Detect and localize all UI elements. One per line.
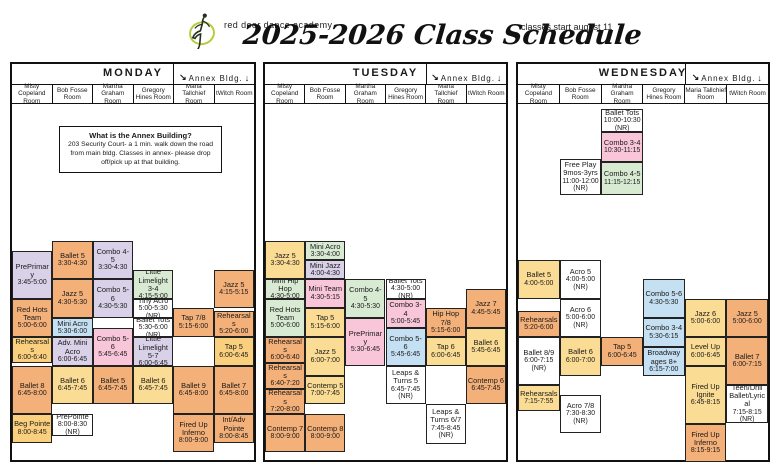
class-cell: Contemp 66:45-7:45 bbox=[466, 366, 506, 404]
class-time: 8:00-9:00 bbox=[179, 437, 208, 445]
class-cell: Ballet 76:00-7:15 bbox=[726, 337, 768, 385]
class-cell: Hip Hop 7/85:15-6:00 bbox=[426, 308, 466, 337]
class-time: 8:00-9:00 bbox=[271, 433, 300, 441]
class-time: 4:45-5:45 bbox=[471, 309, 500, 317]
class-cell: Leaps & Turns 6/77:45-8:45 (NR) bbox=[426, 404, 466, 444]
class-time: 6:00-7:15 (NR) bbox=[520, 357, 558, 372]
class-name: Ballet 5 bbox=[60, 252, 85, 260]
class-time: 11:00-12:00 (NR) bbox=[562, 178, 600, 193]
class-time: 6:40-7:20 bbox=[271, 380, 300, 388]
class-time: 4:00-4:30 bbox=[311, 270, 340, 278]
class-name: Tap 6 bbox=[437, 343, 455, 351]
room-header: tWitch Room bbox=[726, 85, 768, 103]
class-time: 6:00-7:00 bbox=[566, 357, 595, 365]
class-cell: Tiny Acro5:00-5:30 (NR) bbox=[133, 299, 173, 318]
class-name: Ballet 7 bbox=[735, 353, 760, 361]
class-time: 7:15-7:55 bbox=[524, 398, 553, 406]
day-header-row: MONDAY↘Annex Bldg.↓ bbox=[12, 64, 254, 85]
class-time: 6:15-7:00 bbox=[649, 366, 678, 374]
class-name: Rehearsals bbox=[267, 364, 303, 381]
class-time: 5:20-6:00 bbox=[219, 328, 248, 336]
class-time: 8:00-8:45 bbox=[219, 433, 248, 441]
class-name: Acro 7/8 bbox=[567, 402, 595, 410]
class-name: Combo 5-6 bbox=[388, 335, 424, 352]
class-time: 5:00-6:00 bbox=[733, 318, 762, 326]
class-name: Combo 5-6 bbox=[95, 286, 131, 303]
class-name: Combo 4-5 bbox=[347, 286, 383, 303]
room-header: Maria Tallchief Room bbox=[173, 85, 214, 103]
class-cell: Fired Up Ignite6:45-8:15 bbox=[685, 366, 727, 424]
class-cell: Rehearsals5:20-6:00 bbox=[518, 311, 560, 337]
day-table-tuesday: TUESDAY↘Annex Bldg.↓Misty Copeland RoomB… bbox=[263, 62, 508, 462]
annex-arrow-down-right-icon: ↘ bbox=[179, 72, 187, 83]
class-cell: Jazz 55:00-6:00 bbox=[726, 299, 768, 337]
class-cell: Tap 56:00-6:45 bbox=[601, 337, 643, 366]
class-name: Fired Up Inferno bbox=[175, 421, 211, 438]
class-name: Free Play 9mos-3yrs bbox=[562, 161, 600, 178]
class-cell: Contemp 57:00-7:45 bbox=[305, 376, 345, 404]
class-time: 6:45-8:00 bbox=[179, 390, 208, 398]
room-header-row: Misty Copeland RoomBob Fosse RoomMartha … bbox=[265, 85, 506, 104]
class-cell: Ballet 66:45-7:45 bbox=[133, 366, 173, 404]
class-name: Ballet Tots bbox=[605, 109, 639, 117]
class-time: 5:45-6:45 bbox=[471, 347, 500, 355]
class-cell: Rehearsals6:00-6:40 bbox=[12, 337, 52, 363]
annex-info-body: 203 Security Court- a 1 min. walk down t… bbox=[64, 141, 217, 167]
annex-arrow-down-icon: ↓ bbox=[757, 73, 762, 83]
class-time: 8:00-8:45 bbox=[18, 429, 47, 437]
annex-bldg-label: ↘Annex Bldg.↓ bbox=[685, 64, 768, 84]
class-cell: Combo 5-64:30-5:30 bbox=[643, 279, 685, 318]
annex-arrow-down-icon: ↓ bbox=[497, 73, 502, 83]
class-cell: Ballet 56:45-7:45 bbox=[93, 366, 133, 404]
class-cell: Mini Jazz4:00-4:30 bbox=[305, 260, 345, 279]
class-cell: Mini Acro3:30-4:00 bbox=[305, 241, 345, 260]
class-name: Contemp 5 bbox=[307, 382, 343, 390]
class-name: Ballet 6 bbox=[60, 377, 85, 385]
annex-label-text: Annex Bldg. bbox=[701, 74, 755, 83]
class-cell: Broadway ages 8+6:15-7:00 bbox=[643, 347, 685, 376]
class-name: Jazz 5 bbox=[315, 348, 336, 356]
class-time: 3:30-4:30 bbox=[58, 260, 87, 268]
class-cell: Combo 4-53:30-4:30 bbox=[93, 241, 133, 279]
class-cell: Combo 3-45:00-5:45 bbox=[386, 299, 426, 328]
day-table-monday: MONDAY↘Annex Bldg.↓Misty Copeland RoomBo… bbox=[10, 62, 256, 462]
class-time: 5:20-6:00 bbox=[524, 324, 553, 332]
class-time: 6:00-6:40 bbox=[271, 354, 300, 362]
class-cell: Ballet 66:00-7:00 bbox=[560, 337, 602, 376]
class-cell: Ballet Tots4:30-5:00 (NR) bbox=[386, 279, 426, 299]
class-cell: Rehearsals6:40-7:20 bbox=[265, 363, 305, 389]
class-time: 8:15-9:15 bbox=[691, 447, 720, 455]
class-cell: Contemp 88:00-9:00 bbox=[305, 414, 345, 452]
day-body: Ballet 54:00-5:00Rehearsals5:20-6:00Ball… bbox=[518, 104, 768, 462]
class-time: 11:15-12:15 bbox=[604, 179, 640, 187]
class-name: Mini Hip Hop bbox=[267, 279, 303, 293]
class-time: 3:30-4:00 bbox=[311, 251, 340, 259]
class-time: 3:30-4:30 bbox=[98, 264, 127, 272]
class-time: 5:00-5:45 bbox=[391, 318, 420, 326]
class-cell: Ballet 86:45-8:00 bbox=[12, 366, 52, 414]
room-header: tWitch Room bbox=[466, 85, 506, 103]
room-header: Maria Tallchief Room bbox=[684, 85, 726, 103]
class-cell: Tap 66:00-6:45 bbox=[426, 337, 466, 366]
class-name: Int/Adv Pointe bbox=[216, 416, 252, 433]
class-time: 8:00-8:30 (NR) bbox=[54, 421, 90, 436]
class-cell: Int/Adv Pointe8:00-8:45 bbox=[214, 414, 254, 443]
class-cell: Jazz 74:45-5:45 bbox=[466, 289, 506, 328]
class-name: Red Hots Team bbox=[14, 306, 50, 323]
class-time: 4:30-5:30 bbox=[58, 299, 87, 307]
class-time: 5:00-5:30 (NR) bbox=[135, 305, 171, 318]
class-cell: Tap 7/85:15-6:00 bbox=[173, 308, 213, 337]
class-cell: Jazz 56:00-7:00 bbox=[305, 337, 345, 376]
day-header-row: WEDNESDAY↘Annex Bldg.↓ bbox=[518, 64, 768, 85]
class-name: Combo 5-6 bbox=[646, 290, 683, 298]
class-cell: Rehearsals6:00-6:40 bbox=[265, 337, 305, 363]
class-cell: Fired Up Inferno8:15-9:15 bbox=[685, 424, 727, 462]
class-cell: Ballet Tots10:00-10:30 (NR) bbox=[601, 109, 643, 132]
class-name: Contemp 7 bbox=[267, 425, 303, 433]
class-cell: Combo 4-54:30-5:30 bbox=[345, 279, 385, 318]
class-cell: PrePointe8:00-8:30 (NR) bbox=[52, 414, 92, 436]
class-time: 6:00-6:45 bbox=[58, 356, 87, 364]
class-name: Little Limelight 3-4 bbox=[135, 270, 171, 293]
class-time: 5:45-6:45 bbox=[391, 351, 420, 359]
room-header: Martha Graham Room bbox=[345, 85, 385, 103]
class-time: 6:00-7:15 bbox=[733, 361, 762, 369]
room-header: Bob Fosse Room bbox=[52, 85, 93, 103]
class-cell: Mini Team4:30-5:15 bbox=[305, 279, 345, 308]
class-time: 5:00-6:00 bbox=[691, 318, 720, 326]
class-name: Ballet 8/9 bbox=[523, 349, 554, 357]
class-cell: Red Hots Team5:00-6:00 bbox=[12, 299, 52, 337]
class-cell: Ballet 66:45-7:45 bbox=[52, 366, 92, 404]
start-date-note: classes start august 11 bbox=[521, 22, 612, 32]
annex-arrow-down-icon: ↓ bbox=[245, 73, 250, 83]
class-name: Mini Acro bbox=[310, 243, 340, 251]
class-cell: Jazz 53:30-4:30 bbox=[265, 241, 305, 279]
class-name: Tap 5 bbox=[225, 343, 243, 351]
class-name: Level Up bbox=[691, 343, 720, 351]
class-time: 6:45-8:00 bbox=[219, 390, 248, 398]
class-time: 6:45-7:45 (NR) bbox=[388, 386, 424, 401]
class-time: 5:45-6:45 bbox=[98, 351, 127, 359]
annex-arrow-down-right-icon: ↘ bbox=[692, 72, 700, 83]
class-cell: Ballet 76:45-8:00 bbox=[214, 366, 254, 414]
class-name: Hip Hop 7/8 bbox=[428, 310, 464, 327]
class-cell: Jazz 54:15-5:15 bbox=[214, 270, 254, 308]
class-name: Leaps & Turns 6/7 bbox=[428, 408, 464, 425]
class-time: 5:00-6:00 bbox=[271, 322, 300, 330]
class-name: Acro 5 bbox=[570, 268, 591, 276]
class-time: 7:30-8:30 (NR) bbox=[562, 410, 600, 425]
class-name: Contemp 6 bbox=[468, 377, 504, 385]
class-name: Ballet 9 bbox=[181, 382, 206, 390]
class-cell: Combo 4-511:15-12:15 bbox=[601, 162, 643, 195]
class-name: Adv. Mini Acro bbox=[54, 339, 90, 356]
class-time: 7:00-7:45 bbox=[311, 390, 340, 398]
schedule-page: red door dance academy 2025-2026 Class S… bbox=[0, 0, 780, 476]
room-header: Misty Copeland Room bbox=[518, 85, 559, 103]
class-name: Ballet 6 bbox=[474, 339, 499, 347]
annex-info-title: What is the Annex Building? bbox=[64, 131, 217, 140]
class-name: Rehearsals bbox=[267, 389, 303, 406]
class-cell: Rehearsals7:15-7:55 bbox=[518, 385, 560, 411]
room-header: Maria Tallchief Room bbox=[425, 85, 465, 103]
class-time: 6:00-6:45 bbox=[608, 352, 637, 360]
class-name: Rehearsals bbox=[14, 338, 50, 355]
class-name: Ballet 8 bbox=[20, 382, 45, 390]
class-cell: Contemp 78:00-9:00 bbox=[265, 414, 305, 452]
class-name: Combo 3-4 bbox=[646, 324, 683, 332]
class-time: 5:15-6:00 bbox=[431, 327, 460, 335]
class-name: Rehearsals bbox=[267, 338, 303, 355]
class-time: 5:00-6:00 (NR) bbox=[562, 314, 600, 329]
class-time: 4:30-5:30 bbox=[649, 299, 678, 307]
class-time: 5:30-6:00 (NR) bbox=[135, 324, 171, 337]
room-header: Misty Copeland Room bbox=[12, 85, 52, 103]
class-time: 6:00-6:45 bbox=[219, 352, 248, 360]
class-name: Mini Acro bbox=[57, 320, 87, 328]
class-cell: Adv. Mini Acro6:00-6:45 bbox=[52, 337, 92, 366]
class-cell: Combo 5-65:45-6:45 bbox=[93, 328, 133, 366]
class-name: Leaps & Turns 5 bbox=[388, 369, 424, 386]
class-time: 7:45-8:45 (NR) bbox=[428, 425, 464, 440]
room-header-row: Misty Copeland RoomBob Fosse RoomMartha … bbox=[518, 85, 768, 104]
class-cell: Mini Hip Hop4:30-5:00 bbox=[265, 279, 305, 299]
class-name: Jazz 5 bbox=[736, 310, 757, 318]
class-time: 5:15-6:00 bbox=[179, 323, 208, 331]
class-name: Combo 4-5 bbox=[604, 170, 641, 178]
class-name: Jazz 7 bbox=[475, 300, 496, 308]
class-time: 5:00-6:00 bbox=[18, 322, 47, 330]
class-cell: Rehearsals5:20-6:00 bbox=[214, 311, 254, 337]
class-name: Combo 5-6 bbox=[95, 335, 131, 352]
class-cell: Ballet 53:30-4:30 bbox=[52, 241, 92, 279]
class-name: Ballet 7 bbox=[221, 382, 246, 390]
class-time: 5:30-6:00 bbox=[58, 328, 87, 336]
annex-label-text: Annex Bldg. bbox=[189, 74, 243, 83]
class-name: PrePrimary bbox=[347, 330, 383, 347]
class-cell: Ballet 8/96:00-7:15 (NR) bbox=[518, 337, 560, 385]
class-time: 6:00-6:45 bbox=[691, 352, 720, 360]
class-name: Ballet 6 bbox=[141, 377, 166, 385]
class-time: 4:30-5:00 (NR) bbox=[388, 285, 424, 299]
class-cell: Fired Up Inferno8:00-9:00 bbox=[173, 414, 213, 452]
class-time: 4:30-5:30 bbox=[98, 303, 127, 311]
class-time: 5:15-6:00 bbox=[311, 323, 340, 331]
class-name: Ballet 5 bbox=[527, 271, 552, 279]
class-name: Rehearsals bbox=[520, 316, 557, 324]
class-cell: Rehearsals7:20-8:00 bbox=[265, 389, 305, 414]
class-cell: Free Play 9mos-3yrs11:00-12:00 (NR) bbox=[560, 159, 602, 195]
class-cell: Combo 5-65:45-6:45 bbox=[386, 328, 426, 366]
class-cell: Acro 7/87:30-8:30 (NR) bbox=[560, 395, 602, 433]
class-name: Rehearsals bbox=[520, 390, 557, 398]
class-time: 5:30-6:45 bbox=[351, 346, 380, 354]
class-time: 7:20-8:00 bbox=[271, 406, 300, 414]
class-time: 4:30-5:15 bbox=[311, 294, 340, 302]
annex-bldg-label: ↘Annex Bldg.↓ bbox=[173, 64, 254, 84]
class-name: Jazz 5 bbox=[62, 290, 83, 298]
class-name: Combo 4-5 bbox=[95, 248, 131, 265]
class-name: Mini Jazz bbox=[310, 262, 341, 270]
room-header: Bob Fosse Room bbox=[304, 85, 344, 103]
class-name: Fired Up Ignite bbox=[687, 383, 725, 400]
class-time: 5:30-6:15 bbox=[649, 333, 678, 341]
class-name: Tap 5 bbox=[613, 343, 631, 351]
class-cell: Little Limelight 5-76:00-6:45 bbox=[133, 337, 173, 366]
class-time: 8:00-9:00 bbox=[311, 433, 340, 441]
class-name: Rehearsals bbox=[216, 312, 252, 329]
class-time: 6:45-8:00 bbox=[18, 390, 47, 398]
class-time: 6:00-7:00 bbox=[311, 357, 340, 365]
room-header: Gregory Hines Room bbox=[642, 85, 684, 103]
class-name: Combo 3-4 bbox=[388, 301, 424, 318]
room-header: Martha Graham Room bbox=[601, 85, 643, 103]
class-cell: Jazz 65:00-6:00 bbox=[685, 299, 727, 337]
room-header: Gregory Hines Room bbox=[385, 85, 425, 103]
class-cell: Ballet 96:45-8:00 bbox=[173, 366, 213, 414]
class-cell: Tap 56:00-6:45 bbox=[214, 337, 254, 366]
class-time: 10:00-10:30 (NR) bbox=[603, 117, 641, 132]
day-table-wednesday: WEDNESDAY↘Annex Bldg.↓Misty Copeland Roo… bbox=[516, 62, 770, 462]
class-name: Beg Pointe bbox=[14, 420, 50, 428]
class-name: Teen/Drill Ballet/Lyrical bbox=[728, 385, 766, 409]
class-cell: Combo 3-45:30-6:15 bbox=[643, 318, 685, 347]
class-name: Broadway ages 8+ bbox=[645, 349, 683, 366]
class-name: Fired Up Inferno bbox=[687, 431, 725, 448]
class-cell: Mini Acro5:30-6:00 bbox=[52, 318, 92, 337]
class-name: PrePrimary bbox=[14, 263, 50, 280]
class-time: 3:30-4:30 bbox=[271, 260, 300, 268]
room-header: Gregory Hines Room bbox=[133, 85, 174, 103]
class-cell: Combo 3-410:30-11:15 bbox=[601, 132, 643, 162]
class-time: 3:45-5:00 bbox=[18, 279, 47, 287]
annex-arrow-down-right-icon: ↘ bbox=[431, 72, 439, 83]
room-header: tWitch Room bbox=[214, 85, 255, 103]
class-cell: Level Up6:00-6:45 bbox=[685, 337, 727, 366]
class-cell: Tap 55:15-6:00 bbox=[305, 308, 345, 337]
class-name: Ballet 5 bbox=[100, 377, 125, 385]
room-header: Bob Fosse Room bbox=[559, 85, 601, 103]
class-time: 4:00-5:00 bbox=[524, 280, 553, 288]
class-cell: Red Hots Team5:00-6:00 bbox=[265, 299, 305, 337]
day-body: Jazz 53:30-4:30Mini Hip Hop4:30-5:00Red … bbox=[265, 104, 506, 462]
class-cell: Beg Pointe8:00-8:45 bbox=[12, 414, 52, 443]
class-time: 10:30-11:15 bbox=[604, 147, 640, 155]
class-time: 6:45-7:45 bbox=[139, 385, 168, 393]
class-name: Acro 6 bbox=[570, 306, 591, 314]
class-cell: Ballet 54:00-5:00 bbox=[518, 260, 560, 299]
annex-bldg-label: ↘Annex Bldg.↓ bbox=[426, 64, 506, 84]
studio-logo-dancer-icon bbox=[186, 11, 218, 54]
class-cell: Acro 65:00-6:00 (NR) bbox=[560, 299, 602, 337]
class-name: Mini Team bbox=[308, 285, 342, 293]
class-name: Ballet 6 bbox=[568, 348, 593, 356]
class-time: 6:45-7:45 bbox=[471, 385, 500, 393]
class-name: Little Limelight 5-7 bbox=[135, 337, 171, 360]
class-name: Red Hots Team bbox=[267, 306, 303, 323]
class-name: Jazz 5 bbox=[274, 252, 295, 260]
class-time: 4:15-5:15 bbox=[219, 289, 248, 297]
class-time: 7:15-8:15 (NR) bbox=[728, 409, 766, 423]
class-cell: Ballet Tots5:30-6:00 (NR) bbox=[133, 318, 173, 337]
class-time: 4:30-5:30 bbox=[351, 303, 380, 311]
room-header: Martha Graham Room bbox=[92, 85, 133, 103]
class-name: Combo 3-4 bbox=[604, 139, 641, 147]
class-name: PrePointe bbox=[56, 414, 88, 421]
class-cell: Combo 5-64:30-5:30 bbox=[93, 279, 133, 318]
annex-label-text: Annex Bldg. bbox=[441, 74, 495, 83]
class-time: 6:45-7:45 bbox=[58, 385, 87, 393]
class-name: Tap 5 bbox=[316, 314, 334, 322]
class-cell: Leaps & Turns 56:45-7:45 (NR) bbox=[386, 366, 426, 404]
class-time: 6:45-8:15 bbox=[691, 399, 720, 407]
class-cell: Teen/Drill Ballet/Lyrical7:15-8:15 (NR) bbox=[726, 385, 768, 423]
class-cell: Little Limelight 3-44:15-5:00 bbox=[133, 270, 173, 299]
day-body: What is the Annex Building?203 Security … bbox=[12, 104, 254, 462]
class-cell: Acro 54:00-5:00 (NR) bbox=[560, 260, 602, 299]
class-cell: PrePrimary5:30-6:45 bbox=[345, 318, 385, 366]
class-time: 6:00-6:45 bbox=[431, 352, 460, 360]
class-time: 6:45-7:45 bbox=[98, 385, 127, 393]
class-name: Jazz 6 bbox=[695, 310, 716, 318]
annex-info-box: What is the Annex Building?203 Security … bbox=[59, 126, 222, 173]
day-header-row: TUESDAY↘Annex Bldg.↓ bbox=[265, 64, 506, 85]
class-name: Jazz 5 bbox=[223, 281, 244, 289]
class-time: 6:00-6:40 bbox=[18, 354, 47, 362]
class-name: Tap 7/8 bbox=[181, 314, 205, 322]
class-name: Contemp 8 bbox=[307, 425, 343, 433]
class-cell: Jazz 54:30-5:30 bbox=[52, 279, 92, 318]
class-time: 4:00-5:00 (NR) bbox=[562, 276, 600, 291]
class-cell: PrePrimary3:45-5:00 bbox=[12, 251, 52, 299]
class-cell: Ballet 65:45-6:45 bbox=[466, 328, 506, 366]
room-header-row: Misty Copeland RoomBob Fosse RoomMartha … bbox=[12, 85, 254, 104]
room-header: Misty Copeland Room bbox=[265, 85, 304, 103]
